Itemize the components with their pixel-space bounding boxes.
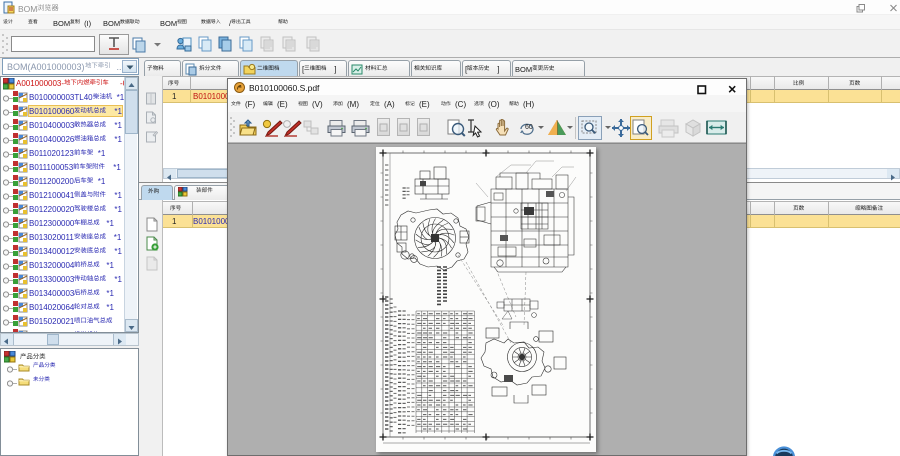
svg-text:60: 60: [525, 124, 533, 131]
